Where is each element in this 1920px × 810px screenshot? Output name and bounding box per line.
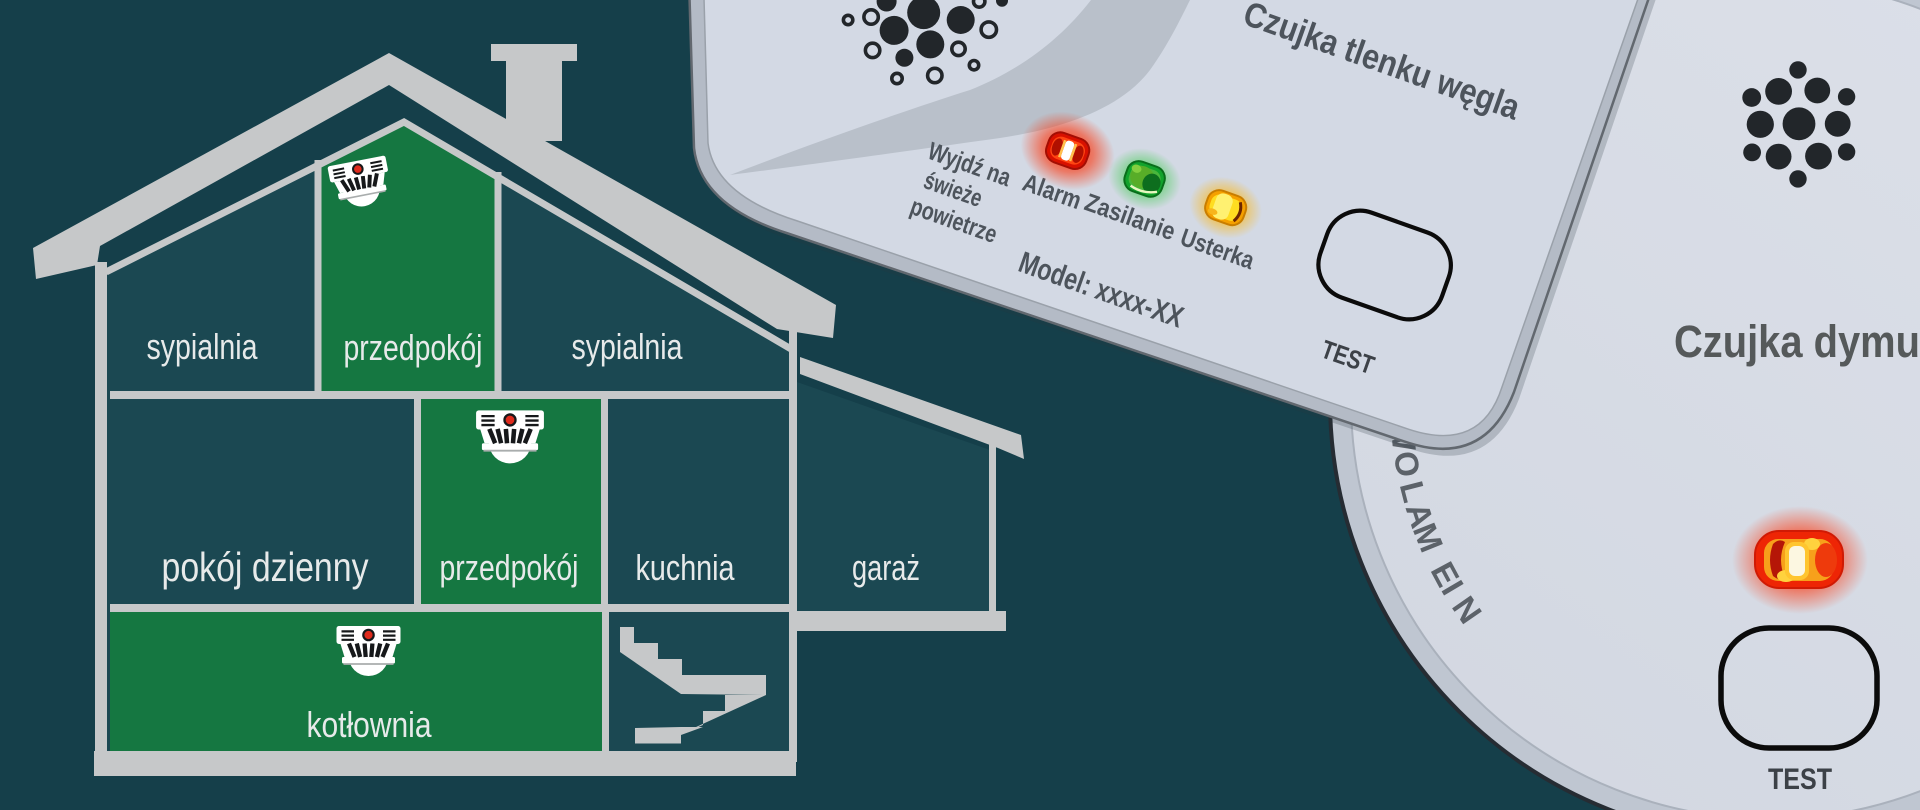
svg-text:przedpokój: przedpokój — [440, 547, 579, 588]
svg-text:kuchnia: kuchnia — [636, 547, 736, 588]
svg-text:przedpokój: przedpokój — [344, 327, 483, 368]
svg-text:Czujka dymu: Czujka dymu — [1674, 316, 1920, 367]
svg-text:TEST: TEST — [1768, 763, 1832, 796]
svg-text:sypialnia: sypialnia — [572, 326, 684, 367]
svg-text:garaż: garaż — [852, 547, 920, 588]
svg-text:pokój dzienny: pokój dzienny — [162, 544, 369, 590]
svg-text:kotłownia: kotłownia — [307, 704, 433, 745]
svg-text:sypialnia: sypialnia — [147, 326, 259, 367]
